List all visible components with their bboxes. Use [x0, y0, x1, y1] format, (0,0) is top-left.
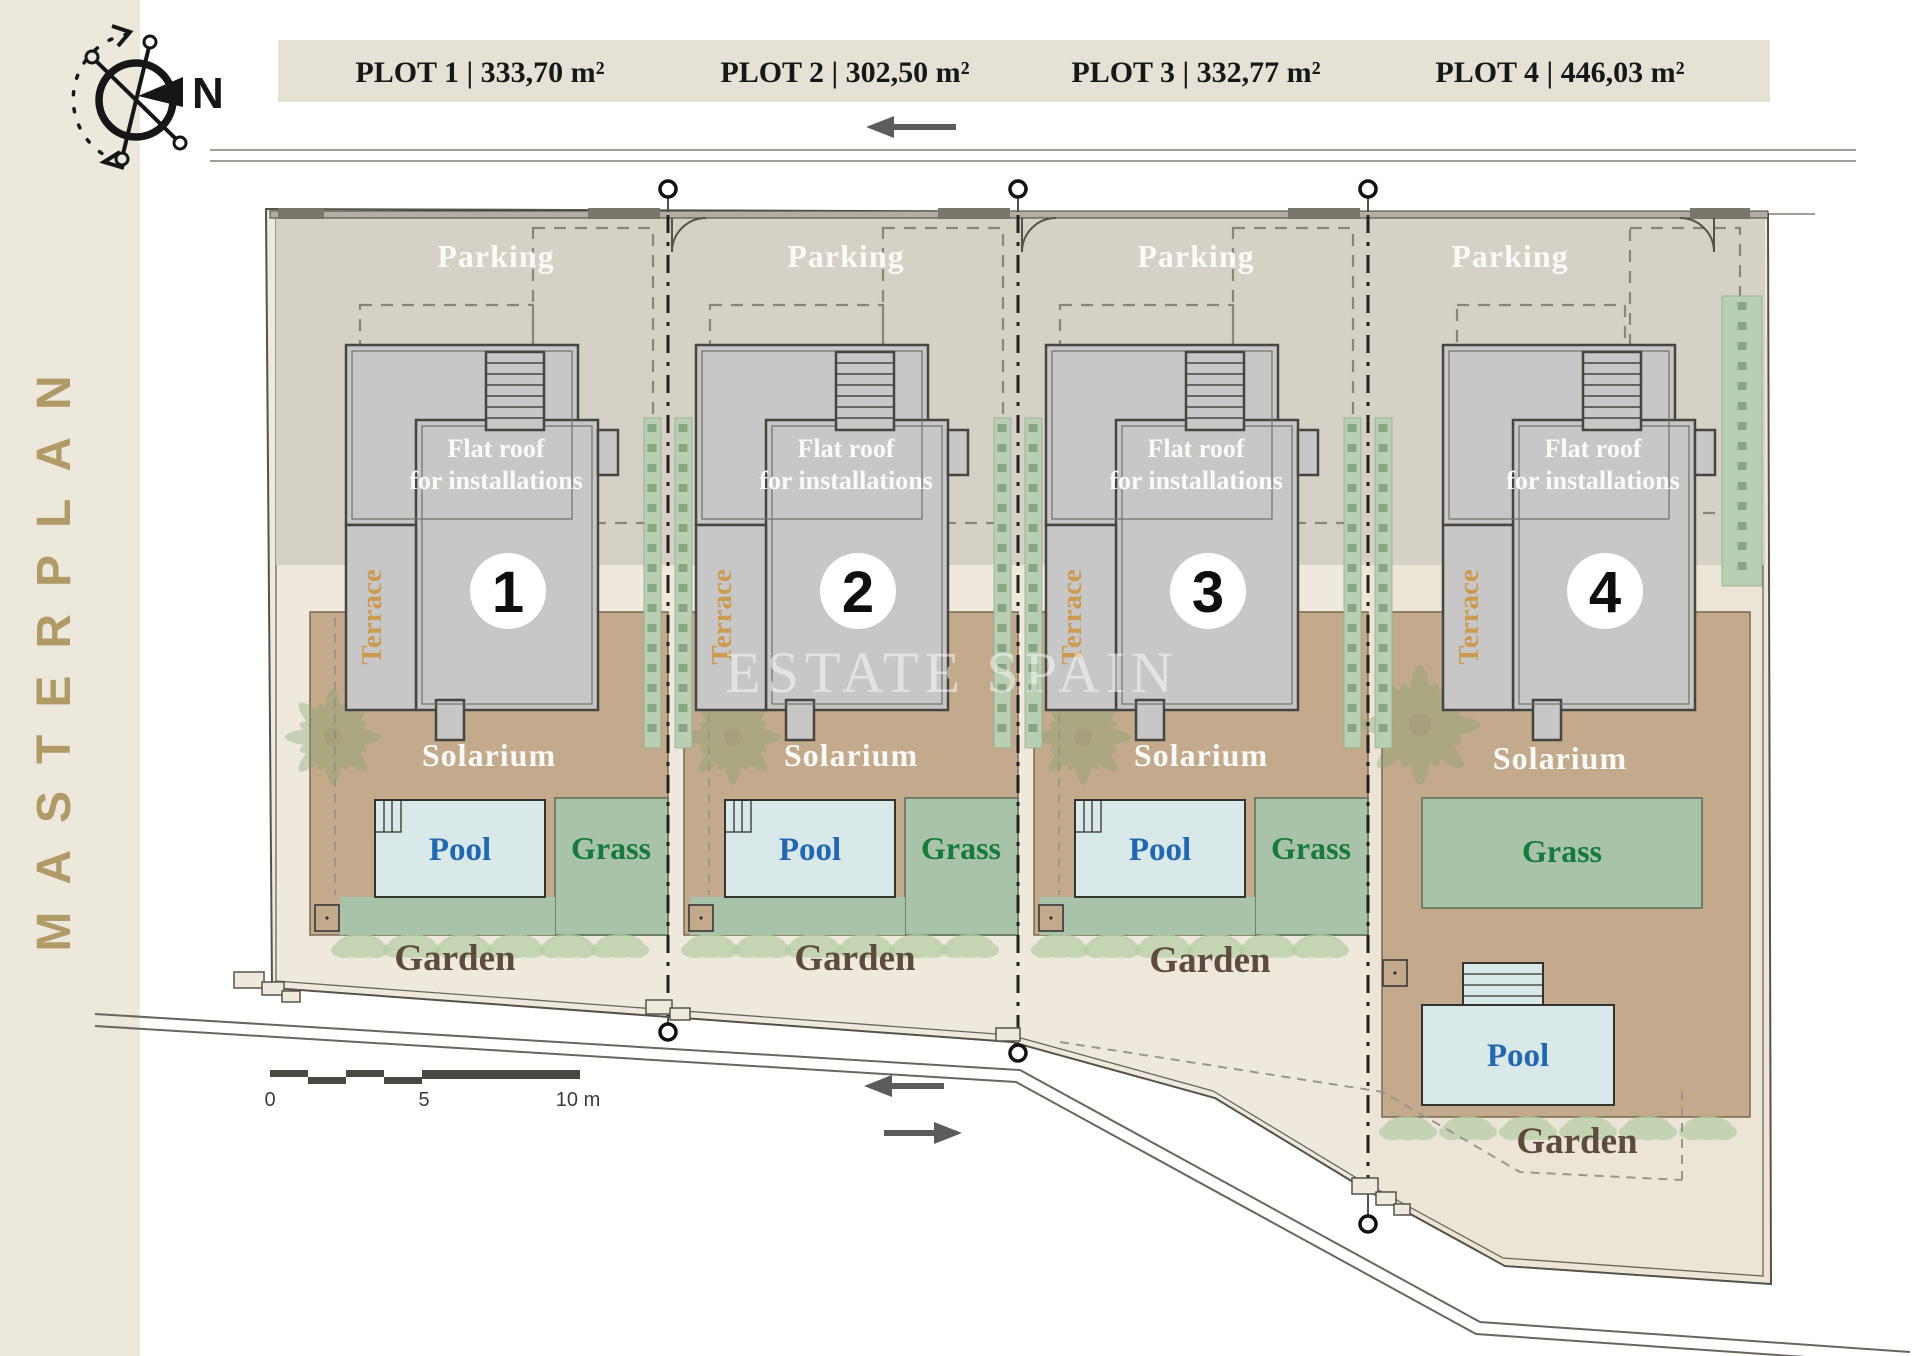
plot-number: 4	[1589, 560, 1621, 625]
garden-label: Garden	[794, 938, 916, 979]
survey-peg	[1010, 181, 1026, 197]
direction-arrow-left	[864, 1075, 944, 1097]
flat-roof-label: for installations	[759, 466, 933, 495]
flat-roof-label: Flat roof	[1148, 434, 1245, 463]
flat-roof-label: Flat roof	[798, 434, 895, 463]
survey-peg	[660, 181, 676, 197]
parking-label: Parking	[1451, 238, 1568, 274]
flat-roof-label: Flat roof	[1545, 434, 1642, 463]
plot-2-grass-strip	[690, 897, 905, 935]
compass-north-label: N	[192, 69, 224, 118]
pool-label: Pool	[1487, 1038, 1549, 1074]
flat-roof-label: for installations	[409, 466, 583, 495]
plot-number: 2	[842, 560, 874, 625]
compass-peg	[174, 137, 186, 149]
header-plot-4: PLOT 4 | 446,03 m²	[1435, 56, 1684, 89]
pool-label: Pool	[429, 832, 491, 868]
grass-label: Grass	[921, 830, 1001, 866]
plot-number: 1	[492, 560, 524, 625]
plot-1-grass-strip	[340, 897, 555, 935]
survey-peg	[1360, 181, 1376, 197]
watermark: ESTATE SPAIN	[725, 640, 1179, 705]
parking-label: Parking	[1137, 238, 1254, 274]
grass-label: Grass	[1522, 833, 1602, 869]
scale-bar: 0 5 10 m	[264, 1070, 600, 1111]
grass-label: Grass	[1271, 830, 1351, 866]
compass-wedge	[138, 77, 183, 107]
survey-peg	[1010, 1045, 1026, 1061]
plot-number: 3	[1192, 560, 1224, 625]
solarium-label: Solarium	[1493, 740, 1627, 776]
garden-label: Garden	[1516, 1121, 1638, 1162]
utility-box-dot	[1049, 916, 1052, 919]
solarium-label: Solarium	[784, 737, 918, 773]
direction-arrow-right	[884, 1122, 962, 1144]
solarium-label: Solarium	[1134, 737, 1268, 773]
survey-peg	[1360, 1216, 1376, 1232]
plot-1-grass	[555, 798, 668, 935]
survey-peg	[660, 1024, 676, 1040]
utility-box-dot	[325, 916, 328, 919]
scale-tick-10: 10 m	[556, 1089, 600, 1111]
utility-box-dot	[1393, 971, 1396, 974]
header-plot-3: PLOT 3 | 332,77 m²	[1071, 56, 1320, 89]
plot-1-building	[346, 345, 618, 740]
utility-box-dot	[699, 916, 702, 919]
compass-peg	[144, 36, 156, 48]
masterplan-page: MASTERPLAN N PLOT 1 | 333,70 m² PLOT 2 |…	[0, 0, 1920, 1356]
pool-label: Pool	[779, 832, 841, 868]
plot-4-building	[1443, 345, 1715, 740]
garden-label: Garden	[394, 938, 516, 979]
plot-3-grass	[1255, 798, 1368, 935]
scale-tick-0: 0	[264, 1089, 275, 1111]
header-plot-1: PLOT 1 | 333,70 m²	[355, 56, 604, 89]
scale-tick-5: 5	[418, 1089, 429, 1111]
plot-2-grass	[905, 798, 1018, 935]
terrace-label: Terrace	[1453, 569, 1485, 665]
flat-roof-label: for installations	[1506, 466, 1680, 495]
solarium-label: Solarium	[422, 737, 556, 773]
parking-label: Parking	[437, 238, 554, 274]
grass-label: Grass	[571, 830, 651, 866]
garden-label: Garden	[1149, 940, 1271, 981]
flat-roof-label: Flat roof	[448, 434, 545, 463]
header-plot-2: PLOT 2 | 302,50 m²	[720, 56, 969, 89]
direction-arrow-top	[866, 116, 956, 138]
terrace-label: Terrace	[356, 569, 388, 665]
masterplan-title: MASTERPLAN	[28, 348, 81, 951]
plot-3-grass-strip	[1040, 897, 1255, 935]
header-bar: PLOT 1 | 333,70 m² PLOT 2 | 302,50 m² PL…	[278, 40, 1770, 102]
pool-label: Pool	[1129, 832, 1191, 868]
flat-roof-label: for installations	[1109, 466, 1283, 495]
parking-label: Parking	[787, 238, 904, 274]
